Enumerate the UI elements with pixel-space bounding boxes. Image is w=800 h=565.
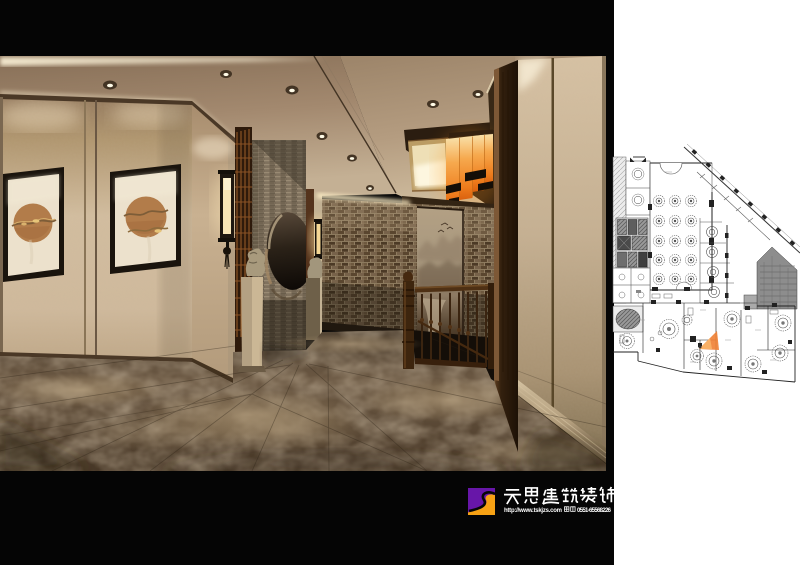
- svg-text:http://www.tskjzs.com: http://www.tskjzs.com: [504, 508, 562, 514]
- svg-text:0551-65568226: 0551-65568226: [577, 508, 612, 514]
